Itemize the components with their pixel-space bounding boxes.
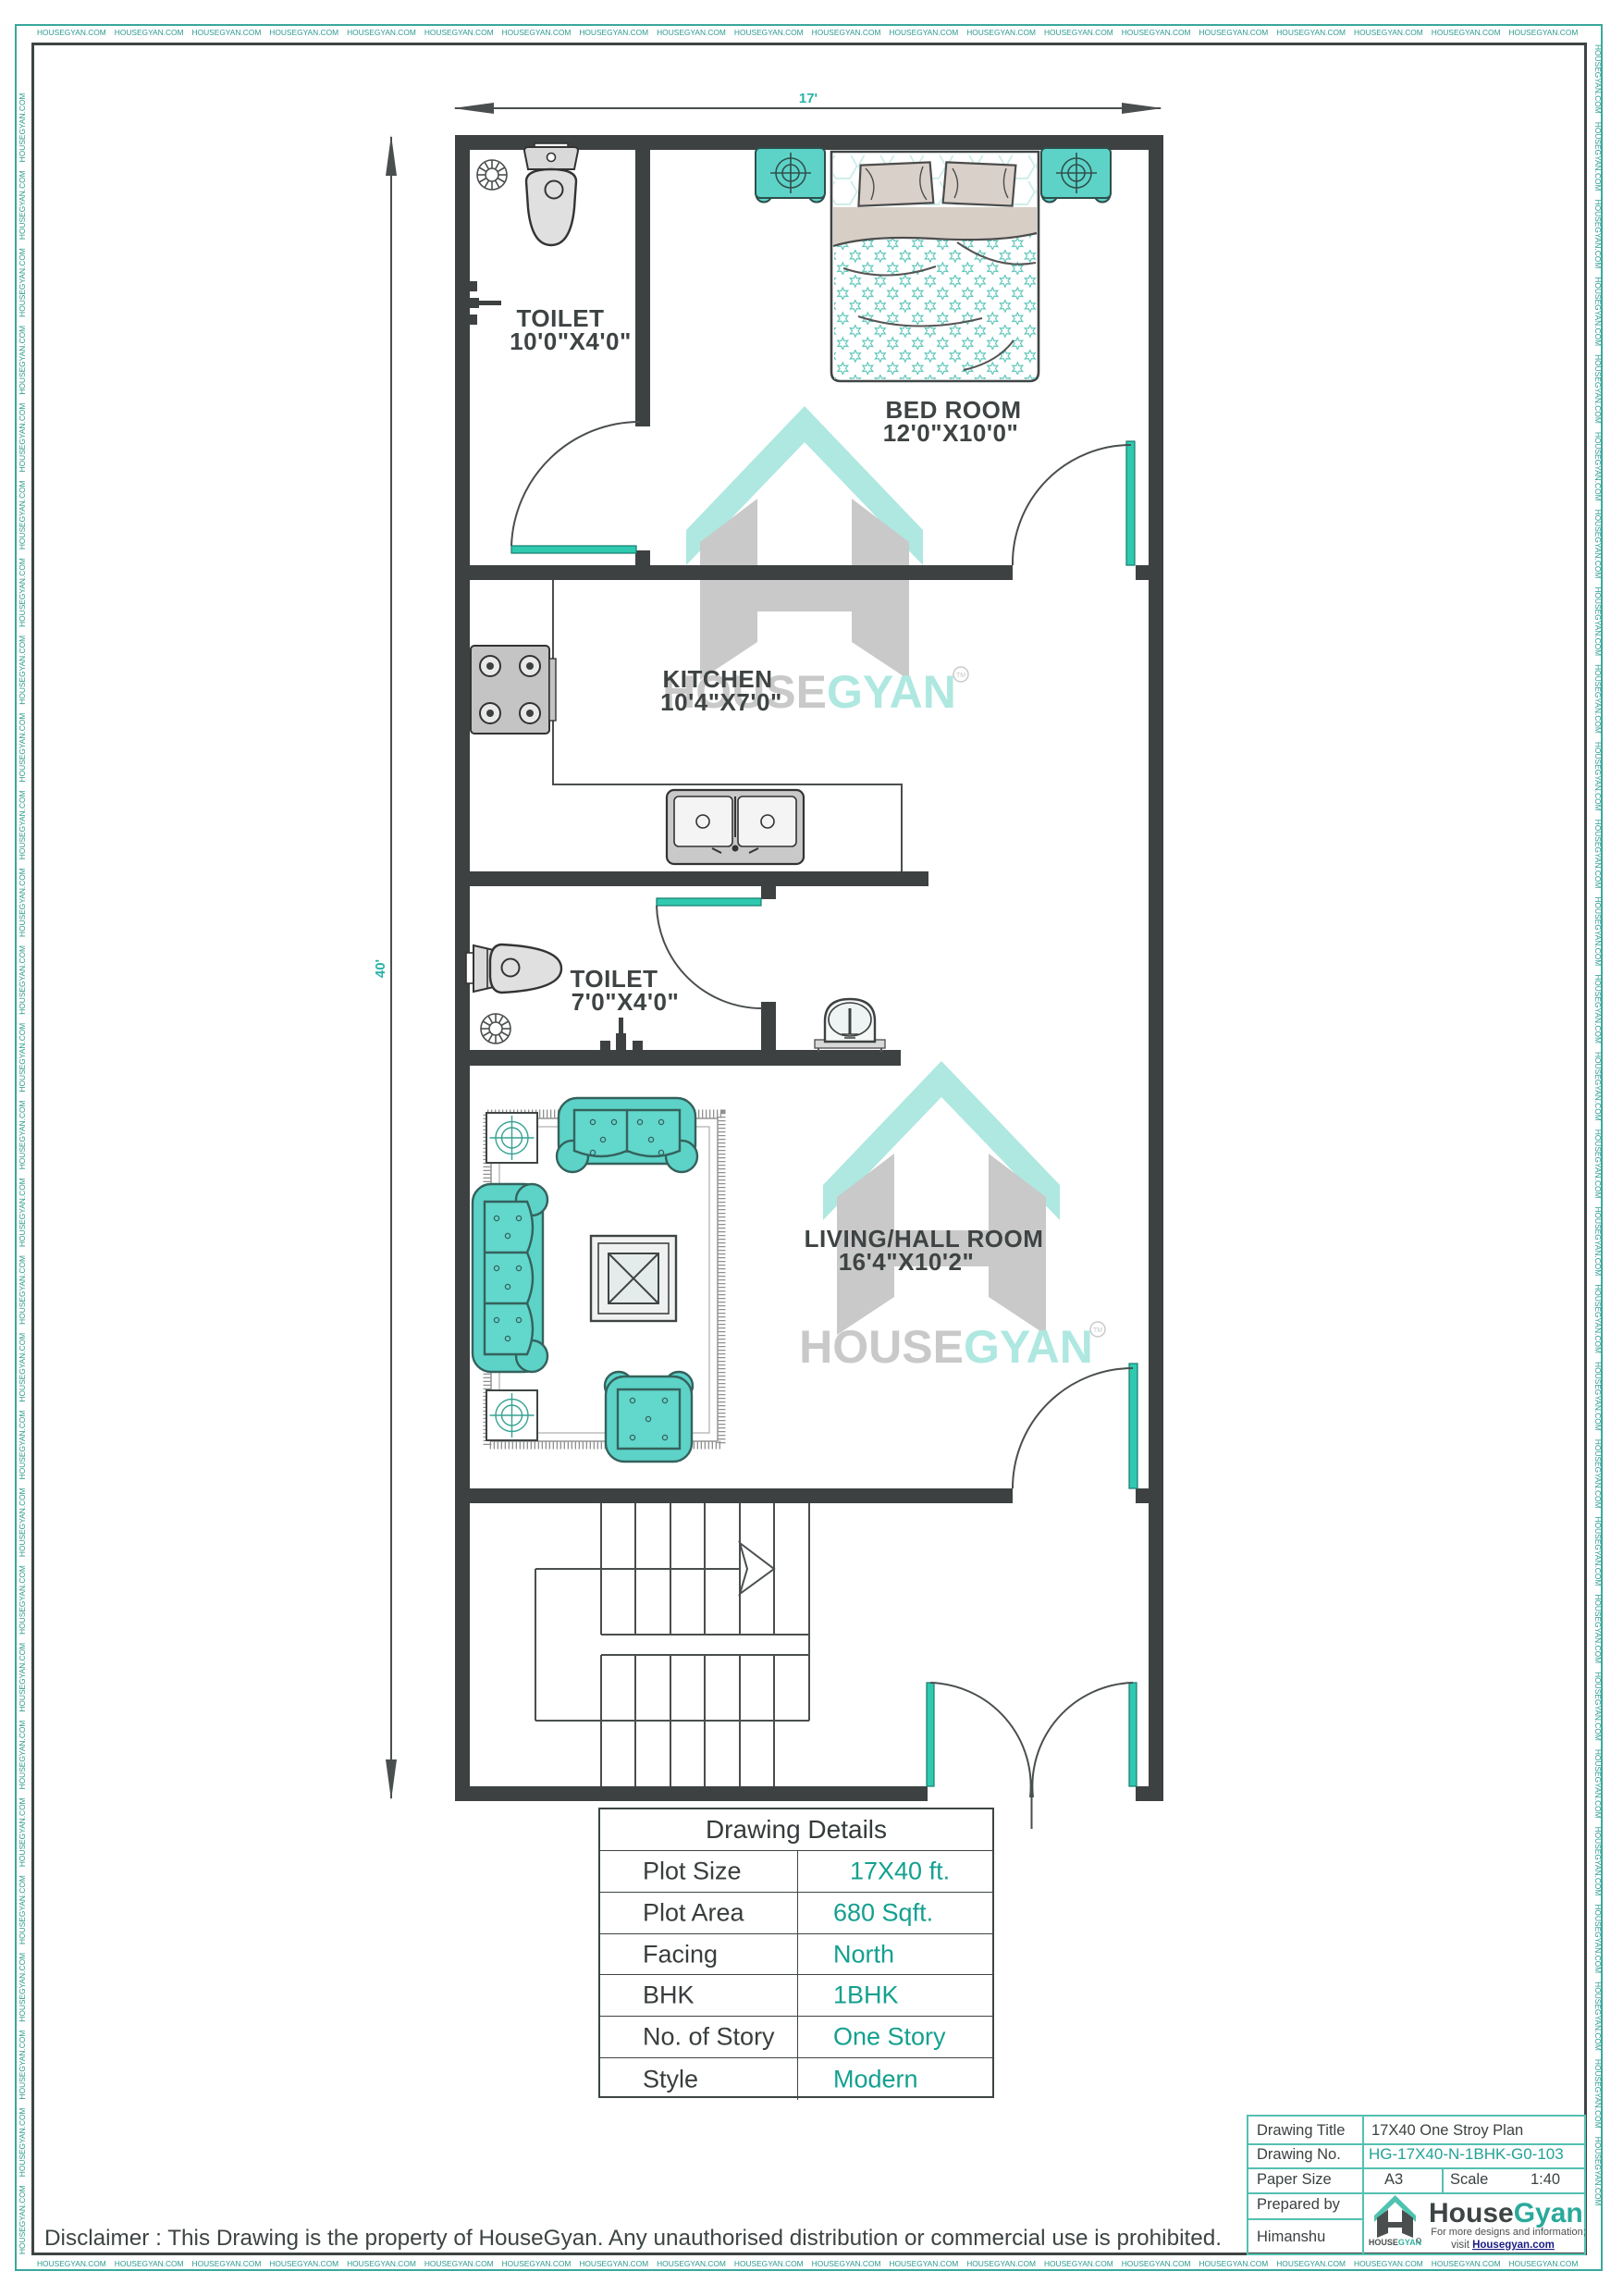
svg-text:For more designs and informati: For more designs and information; (1431, 2227, 1586, 2238)
svg-text:40': 40' (373, 959, 388, 978)
svg-text:10'4"X7'0": 10'4"X7'0" (660, 688, 782, 716)
svg-text:10'0"X4'0": 10'0"X4'0" (510, 327, 632, 355)
svg-text:HouseGyan: HouseGyan (1429, 2198, 1583, 2228)
svg-text:17': 17' (799, 91, 818, 106)
svg-text:12'0"X10'0": 12'0"X10'0" (883, 419, 1019, 447)
svg-text:16'4"X10'2": 16'4"X10'2" (839, 1248, 975, 1276)
svg-text:visit Housegyan.com: visit Housegyan.com (1451, 2240, 1555, 2251)
svg-text:HOUSEGYAN: HOUSEGYAN (1369, 2238, 1421, 2247)
svg-text:7'0"X4'0": 7'0"X4'0" (572, 988, 680, 1016)
